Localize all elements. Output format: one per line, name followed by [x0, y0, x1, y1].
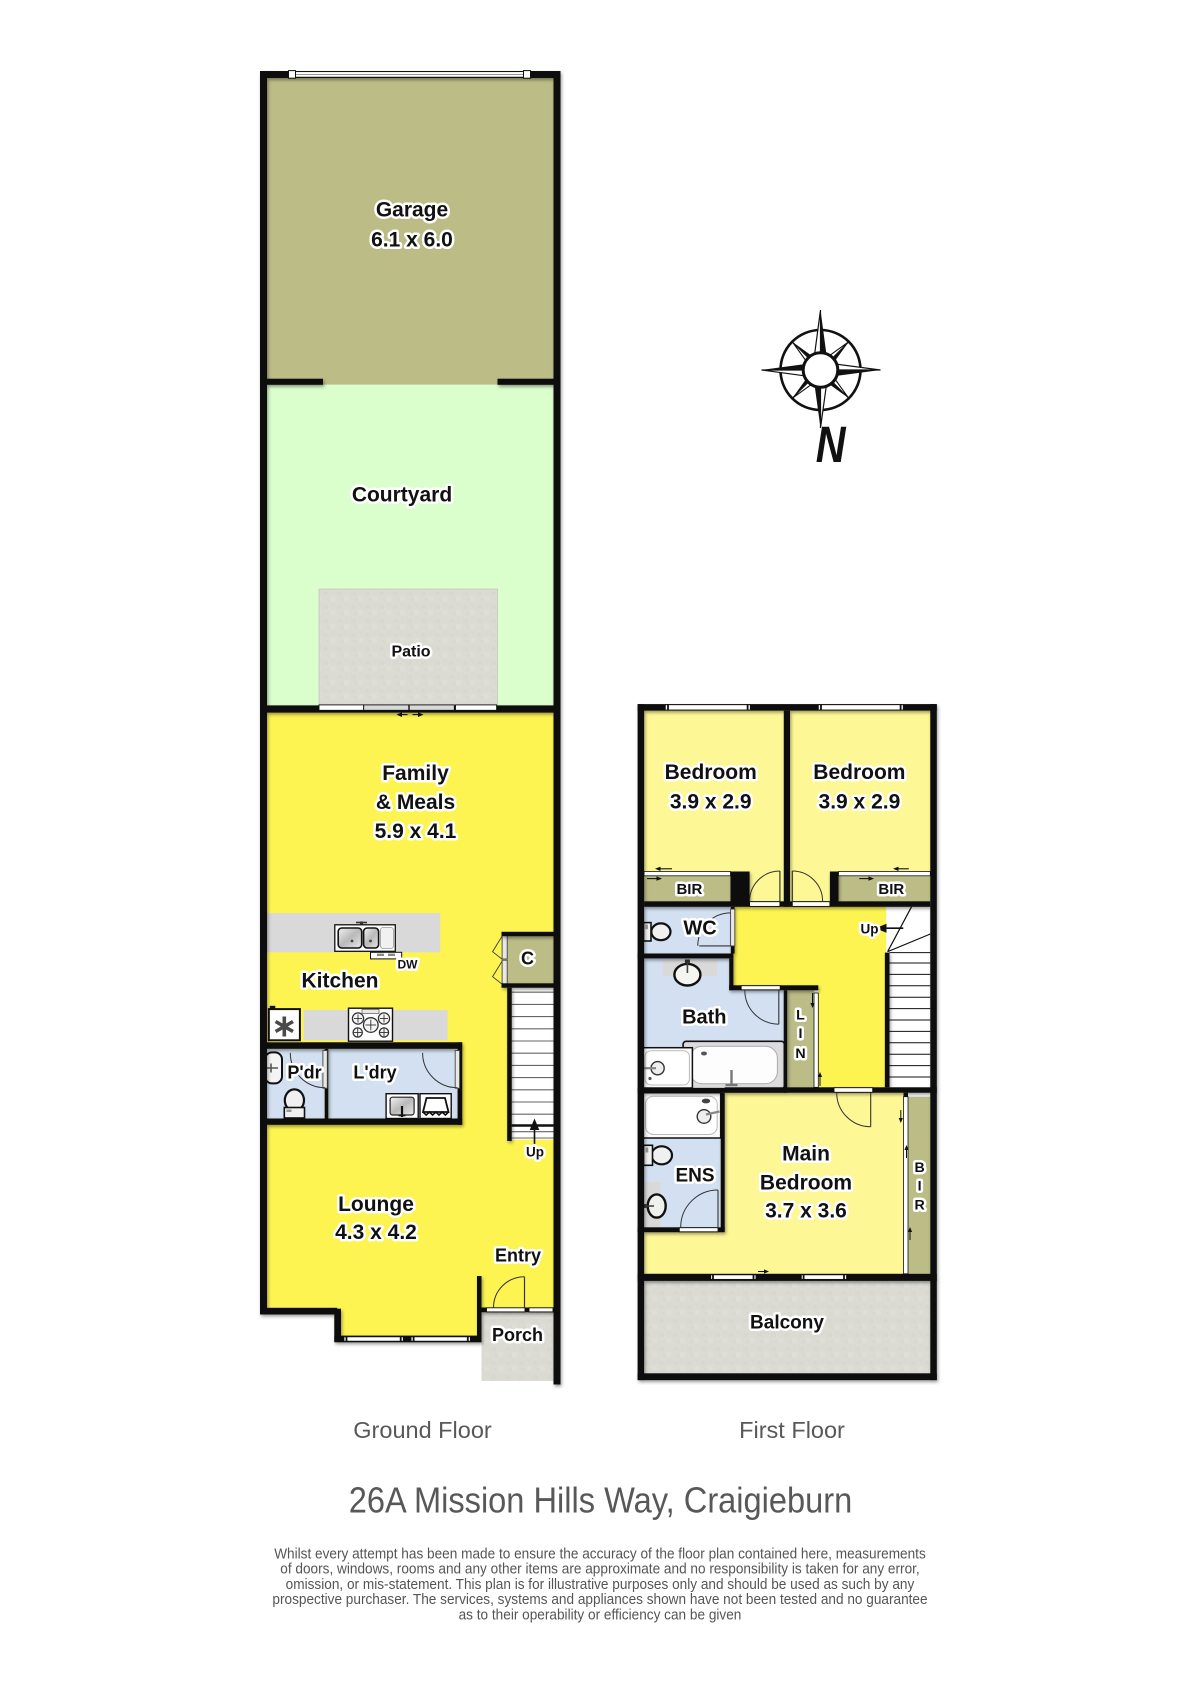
svg-text:I: I	[918, 1179, 922, 1195]
svg-text:BIR: BIR	[878, 881, 904, 898]
svg-text:5.9 x 4.1: 5.9 x 4.1	[375, 820, 457, 843]
svg-text:Balcony: Balcony	[750, 1313, 824, 1334]
svg-text:Garage: Garage	[376, 199, 448, 222]
svg-text:prospective purchaser. The ser: prospective purchaser. The services, sys…	[272, 1592, 927, 1609]
svg-text:6.1 x 6.0: 6.1 x 6.0	[371, 229, 453, 252]
svg-text:Main: Main	[782, 1143, 830, 1166]
svg-text:P'dr: P'dr	[287, 1063, 321, 1083]
svg-text:L'dry: L'dry	[353, 1063, 396, 1083]
svg-text:Bath: Bath	[682, 1007, 726, 1029]
svg-text:Ground Floor: Ground Floor	[353, 1417, 492, 1443]
svg-text:Porch: Porch	[492, 1325, 543, 1345]
svg-text:B: B	[914, 1160, 924, 1176]
svg-text:26A Mission Hills Way, Craigie: 26A Mission Hills Way, Craigieburn	[349, 1481, 853, 1521]
svg-text:WC: WC	[683, 918, 716, 940]
svg-text:R: R	[914, 1197, 924, 1213]
svg-text:DW: DW	[398, 958, 419, 972]
svg-text:N: N	[795, 1046, 805, 1062]
svg-text:BIR: BIR	[676, 881, 702, 898]
svg-text:Patio: Patio	[391, 644, 430, 661]
svg-text:Entry: Entry	[495, 1246, 541, 1266]
svg-text:Up: Up	[861, 922, 879, 937]
svg-text:Up: Up	[526, 1145, 544, 1160]
svg-text:Kitchen: Kitchen	[301, 970, 378, 993]
svg-text:Courtyard: Courtyard	[352, 484, 452, 507]
svg-text:& Meals: & Meals	[376, 791, 455, 814]
svg-text:N: N	[816, 416, 847, 473]
svg-text:4.3 x 4.2: 4.3 x 4.2	[335, 1221, 417, 1244]
svg-text:L: L	[796, 1008, 805, 1024]
svg-text:of doors, windows, rooms and a: of doors, windows, rooms and any other i…	[280, 1561, 919, 1578]
svg-text:ENS: ENS	[675, 1166, 714, 1187]
svg-text:3.7 x 3.6: 3.7 x 3.6	[765, 1200, 847, 1223]
svg-text:omission, or mis-statement. Th: omission, or mis-statement. This plan is…	[286, 1576, 915, 1593]
svg-text:3.9 x 2.9: 3.9 x 2.9	[670, 791, 752, 814]
svg-text:C: C	[521, 949, 534, 969]
svg-text:Bedroom: Bedroom	[760, 1172, 852, 1195]
svg-text:I: I	[799, 1026, 803, 1042]
svg-text:Bedroom: Bedroom	[813, 761, 905, 784]
svg-text:Lounge: Lounge	[338, 1193, 414, 1216]
svg-text:as to their operability or eff: as to their operability or efficiency ca…	[459, 1607, 742, 1624]
svg-text:Family: Family	[382, 762, 449, 785]
svg-text:Bedroom: Bedroom	[665, 761, 757, 784]
svg-text:First Floor: First Floor	[739, 1417, 845, 1443]
svg-text:Whilst every attempt has been: Whilst every attempt has been made to en…	[274, 1546, 926, 1563]
svg-text:3.9 x 2.9: 3.9 x 2.9	[819, 791, 901, 814]
